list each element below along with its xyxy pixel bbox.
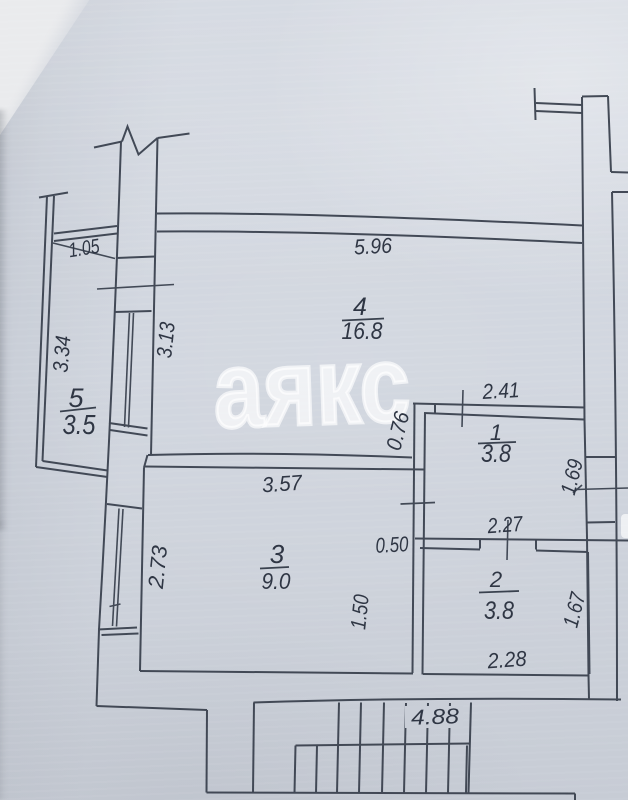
svg-text:3.8: 3.8: [481, 440, 511, 468]
svg-text:3.5: 3.5: [63, 409, 96, 440]
svg-text:1.05: 1.05: [67, 235, 102, 263]
svg-text:2.73: 2.73: [144, 544, 172, 590]
svg-text:3.13: 3.13: [152, 321, 180, 359]
svg-text:3.8: 3.8: [484, 597, 514, 625]
svg-text:9.0: 9.0: [262, 568, 291, 594]
svg-text:16.8: 16.8: [342, 318, 384, 345]
svg-text:0.50: 0.50: [375, 532, 409, 558]
svg-text:5.96: 5.96: [353, 234, 392, 260]
svg-text:1.50: 1.50: [346, 593, 374, 630]
svg-text:4: 4: [353, 293, 367, 321]
svg-text:2: 2: [489, 567, 502, 592]
svg-text:1.67: 1.67: [559, 589, 591, 630]
svg-text:1.69: 1.69: [556, 457, 588, 498]
svg-text:2.28: 2.28: [486, 647, 528, 674]
svg-text:3.57: 3.57: [261, 471, 304, 498]
svg-text:2.41: 2.41: [481, 378, 520, 404]
svg-text:4.88: 4.88: [411, 704, 460, 730]
svg-text:3: 3: [270, 539, 285, 569]
svg-text:3.34: 3.34: [48, 334, 75, 373]
svg-text:2.27: 2.27: [486, 512, 524, 539]
